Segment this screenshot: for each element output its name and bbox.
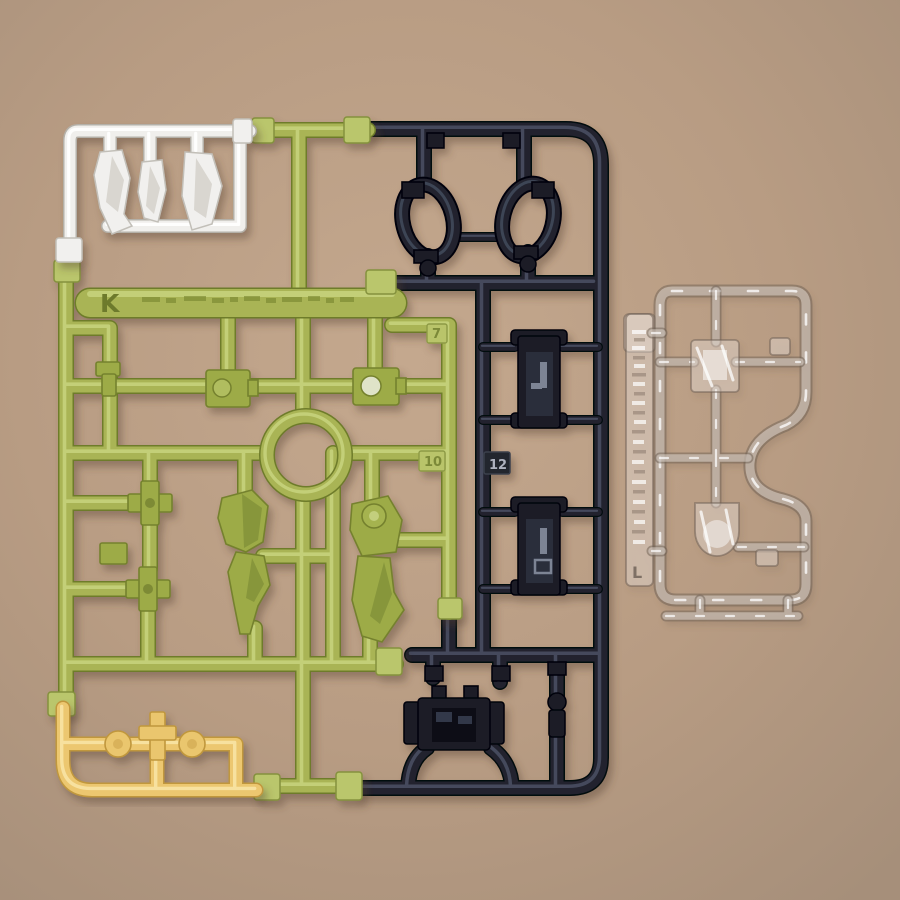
gate-letter-l: L <box>632 563 642 582</box>
black-gate-tab <box>427 133 444 148</box>
black-gate-tab <box>503 133 520 148</box>
yellow-part-disc-a <box>105 731 131 757</box>
gate-letter-k: K <box>100 289 121 318</box>
tag-number-12: 12 <box>489 458 507 473</box>
sprue-photo-canvas: K 7 10 12 L <box>0 0 900 900</box>
black-part-box-lower <box>511 497 567 595</box>
black-part-joint <box>548 693 566 737</box>
yellow-part-disc-b <box>179 731 205 757</box>
tag-number-7: 7 <box>432 327 441 342</box>
black-part-box-upper <box>511 330 567 428</box>
photo-model-kit-sprues: K 7 10 12 L <box>0 0 900 900</box>
tag-number-10: 10 <box>424 455 442 470</box>
black-gate-tab <box>425 666 443 681</box>
white-joint-block <box>56 238 82 262</box>
clear-part-lower <box>695 503 739 556</box>
black-gate-tab <box>492 666 510 681</box>
clear-part-tab-upper <box>770 338 790 355</box>
green-part-box-a <box>206 370 258 407</box>
green-part-block <box>100 543 127 564</box>
clear-part-tab-lower <box>756 550 778 566</box>
white-joint-block <box>233 119 252 143</box>
black-gate-tab <box>548 662 566 675</box>
clear-part-upper <box>691 340 739 392</box>
green-part-box-b <box>353 368 406 405</box>
